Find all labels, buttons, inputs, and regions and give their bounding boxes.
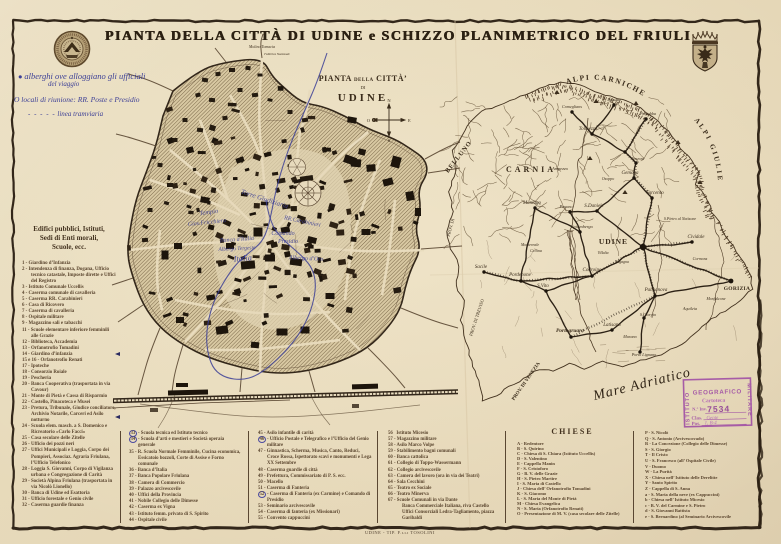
svg-text:ISTITUTO: ISTITUTO [685, 392, 692, 425]
svg-text:Pinzano: Pinzano [558, 204, 572, 209]
svg-text:Cividale: Cividale [688, 235, 706, 240]
svg-text:Aquileia: Aquileia [682, 306, 697, 311]
svg-text:PROV. DI VENEZIA: PROV. DI VENEZIA [511, 361, 541, 401]
svg-text:PROV. DI: PROV. DI [446, 218, 456, 238]
svg-text:Clas.: Clas. [691, 416, 703, 421]
svg-text:ALPI CARNICHE: ALPI CARNICHE [565, 73, 648, 99]
svg-text:Venzone: Venzone [631, 156, 644, 161]
svg-text:Cellina: Cellina [530, 248, 542, 253]
svg-text:CARNIA: CARNIA [506, 165, 556, 174]
svg-text:Palmanova: Palmanova [644, 288, 668, 293]
svg-text:Codroipo: Codroipo [583, 268, 602, 273]
svg-text:MILITARE: MILITARE [746, 383, 753, 417]
svg-text:N: N [387, 98, 391, 103]
svg-text:Fabbrica Nazionale: Fabbrica Nazionale [263, 52, 290, 56]
svg-text:S.Vito: S.Vito [537, 284, 549, 289]
svg-text:GEOGRAFICO: GEOGRAFICO [693, 388, 742, 396]
svg-text:Tolmezzo: Tolmezzo [579, 127, 598, 132]
svg-text:Spilimbergo: Spilimbergo [571, 224, 594, 229]
svg-text:S.Giorgio: S.Giorgio [640, 312, 656, 317]
svg-text:S.Pietro al Natisone: S.Pietro al Natisone [664, 216, 696, 221]
svg-text:UDINE: UDINE [338, 92, 388, 104]
svg-text:Pontebba: Pontebba [639, 111, 656, 116]
svg-text:N.° Inv.: N.° Inv. [692, 406, 707, 411]
svg-text:Portogruaro: Portogruaro [556, 328, 584, 334]
svg-text:Latisana: Latisana [602, 323, 621, 328]
svg-text:Villalta: Villalta [597, 251, 608, 255]
svg-text:GORIZIA: GORIZIA [724, 286, 751, 292]
svg-text:Mare Adriatico: Mare Adriatico [591, 365, 693, 404]
svg-text:Presidio: Presidio [277, 239, 298, 245]
svg-text:Pos.: Pos. [692, 422, 702, 427]
svg-text:Sacile: Sacile [475, 265, 488, 270]
svg-text:E: E [408, 118, 411, 123]
svg-text:Cormons: Cormons [693, 256, 708, 261]
svg-text:Paluzza: Paluzza [606, 97, 620, 102]
svg-text:Osoppo: Osoppo [602, 176, 614, 181]
svg-text:Monfalcone: Monfalcone [705, 296, 725, 301]
svg-text:Pordenone: Pordenone [508, 273, 532, 278]
svg-text:Comando: Comando [271, 231, 294, 237]
svg-text:Italia: Italia [232, 252, 252, 264]
svg-text:DI: DI [361, 85, 366, 90]
svg-text:Comeglians: Comeglians [562, 104, 582, 109]
svg-text:Montereale: Montereale [520, 242, 540, 247]
svg-text:Fagagna: Fagagna [614, 260, 629, 264]
svg-text:Gemona: Gemona [622, 171, 639, 176]
svg-text:Porto Lignano: Porto Lignano [631, 352, 657, 357]
svg-text:PIANTA DELLA CITTÀ’: PIANTA DELLA CITTÀ’ [319, 73, 407, 83]
svg-text:Maniago: Maniago [522, 201, 542, 206]
svg-text:Marano: Marano [622, 334, 637, 339]
svg-text:PROV. DI TREVISO: PROV. DI TREVISO [468, 298, 485, 337]
svg-text:O: O [367, 118, 371, 123]
svg-text:Tarcento: Tarcento [646, 191, 664, 196]
svg-text:UDINE: UDINE [599, 237, 628, 246]
svg-text:S.Daniele: S.Daniele [584, 204, 604, 209]
